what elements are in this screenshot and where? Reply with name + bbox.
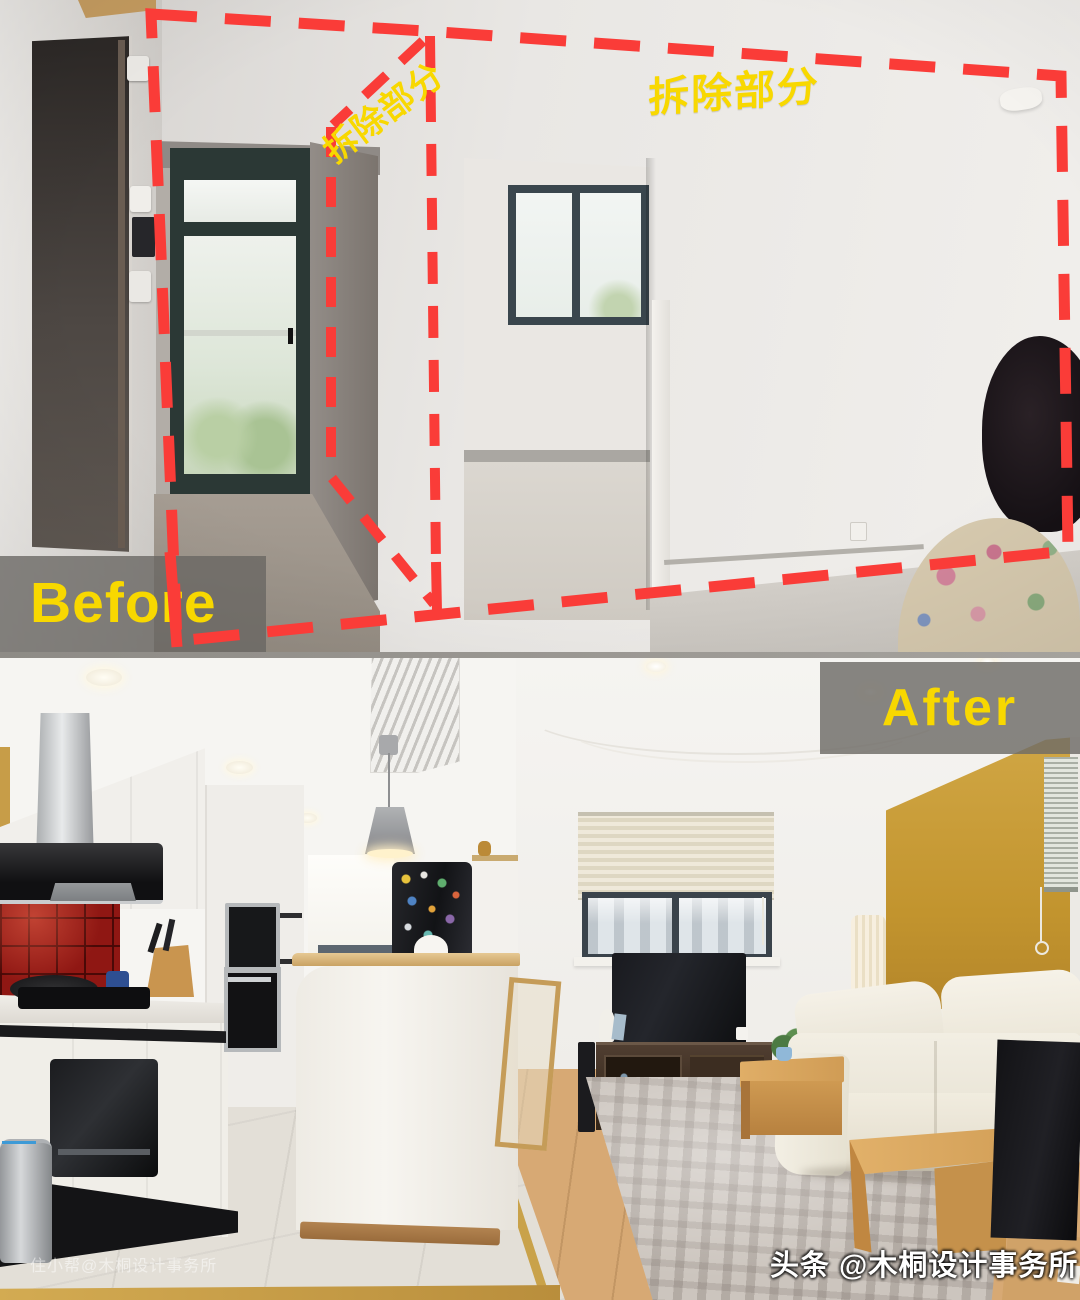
- watermark-right: 头条 @木桐设计事务所: [770, 1242, 1078, 1284]
- pendant-lamp-shade: [365, 807, 415, 854]
- ac-linear-vent: [370, 657, 460, 773]
- ceiling-spotlight: [646, 661, 666, 672]
- kitchen-window: [308, 855, 394, 955]
- coffee-bench-leg: [741, 1081, 750, 1139]
- oven-handle: [228, 977, 271, 982]
- before-label-box: Before: [0, 556, 266, 652]
- range-hood-filter: [50, 883, 136, 901]
- recessed-downlight: [86, 669, 122, 686]
- before-label: Before: [30, 570, 217, 636]
- pendant-cord: [388, 753, 390, 811]
- blind-cord-ring: [1035, 941, 1049, 955]
- demolition-label-right: 拆除部分: [648, 52, 820, 124]
- kitchen-window-sill: [318, 945, 394, 953]
- cellular-window-shade: [578, 812, 774, 900]
- shade-pull-cord: [762, 897, 764, 945]
- pendant-lamp-glow: [367, 849, 413, 858]
- venetian-blind: [1044, 757, 1078, 892]
- kitchen-island: [296, 966, 518, 1230]
- before-after-photo-collage: 拆除部分 拆除部分 Before: [0, 0, 1080, 1300]
- black-side-panel: [991, 1040, 1080, 1241]
- island-wood-countertop: [292, 953, 520, 966]
- after-label: After: [820, 678, 1080, 738]
- built-in-microwave: [225, 903, 280, 971]
- fridge-magnets: [398, 869, 464, 943]
- television: [612, 953, 746, 1051]
- blue-cup: [776, 1047, 792, 1061]
- brass-vase: [478, 841, 491, 856]
- mug: [736, 1027, 748, 1040]
- stainless-trash-can: [0, 1139, 52, 1263]
- dishwasher-handle: [58, 1149, 150, 1155]
- range-hood-chimney: [36, 713, 94, 861]
- after-label-box: After: [820, 662, 1080, 754]
- gas-cooktop: [18, 987, 150, 1009]
- built-in-dishwasher: [50, 1059, 158, 1177]
- watermark-left: 住小帮@木桐设计事务所: [30, 1252, 217, 1276]
- blind-pull-cord: [1040, 887, 1042, 943]
- photo-divider: [0, 652, 1080, 658]
- living-window-mullion: [672, 898, 679, 954]
- coffee-bench-front: [746, 1081, 842, 1135]
- trash-can-accent: [2, 1141, 36, 1144]
- pendant-ceiling-mount: [379, 735, 398, 755]
- pantry-cabinet: [472, 855, 518, 965]
- recessed-downlight: [226, 761, 253, 774]
